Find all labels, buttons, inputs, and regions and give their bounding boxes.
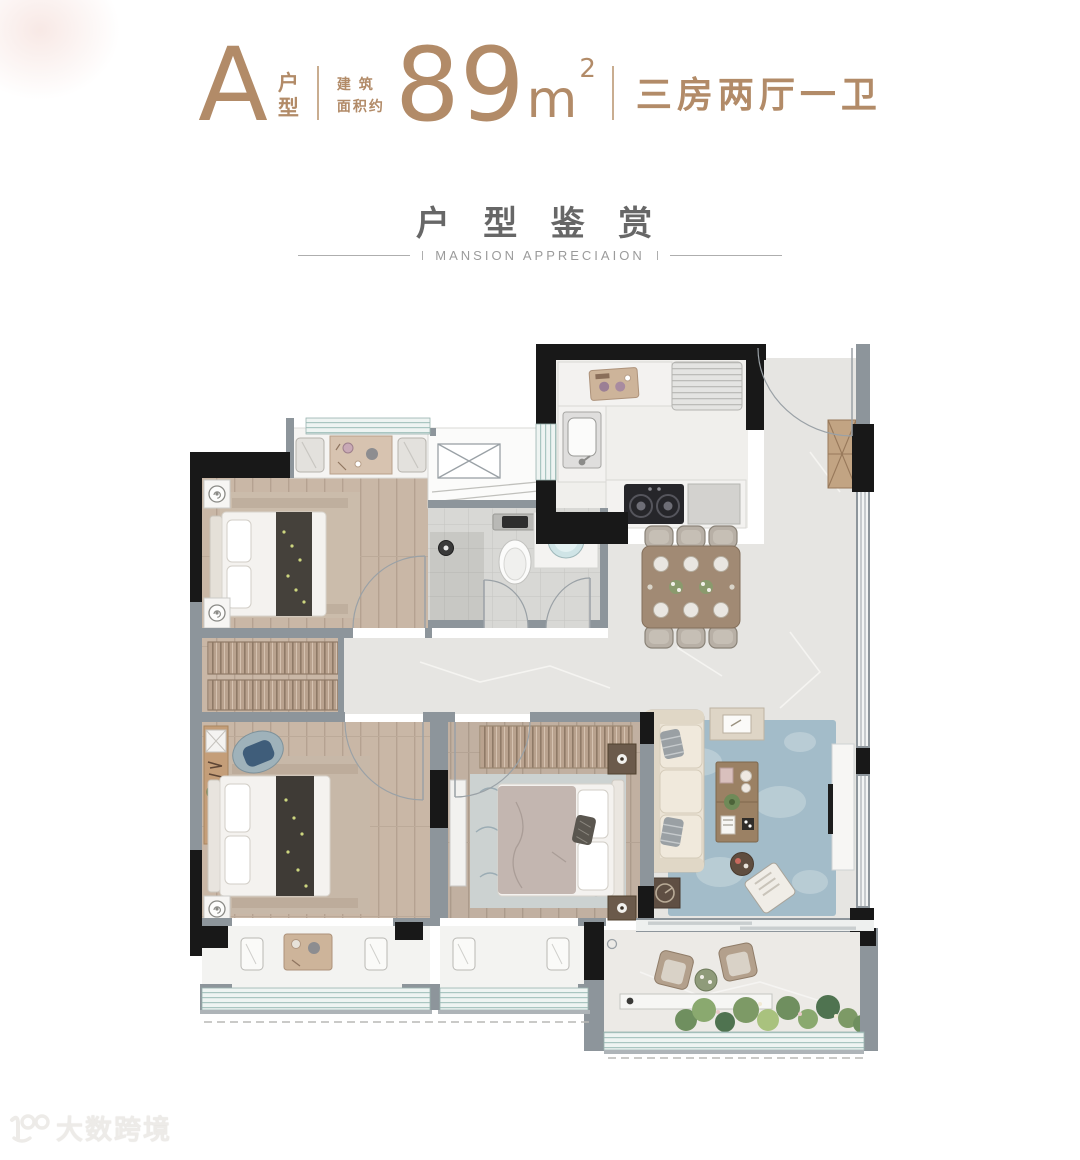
cutting-board — [589, 367, 639, 400]
area-superscript: 2 — [579, 54, 596, 84]
watermark: 大数跨境 — [6, 1108, 172, 1147]
subtitle-tick-right — [657, 251, 658, 260]
section-subtitle: MANSION APPRECIAION — [435, 248, 644, 263]
header-divider-2 — [612, 66, 614, 120]
tray — [284, 934, 332, 970]
watermark-logo — [6, 1110, 50, 1146]
window — [306, 418, 430, 434]
unit-type-letter: A — [198, 44, 268, 128]
window — [440, 988, 588, 1010]
section-title: 户 型 鉴 赏 — [0, 196, 1080, 245]
terrace-table — [695, 969, 717, 991]
desk — [330, 436, 392, 474]
stove — [624, 484, 684, 524]
unit-type-char-1: 户 — [278, 71, 299, 96]
stool — [731, 853, 754, 876]
watermark-text: 大数跨境 — [56, 1108, 172, 1147]
refrigerator — [672, 362, 742, 410]
area-prefix: 建 筑 面积约 — [337, 74, 385, 117]
terrace-chair — [718, 942, 758, 982]
bed-runner — [276, 512, 312, 616]
unit-type-label: 户 型 — [278, 71, 299, 121]
window — [202, 988, 430, 1010]
window — [858, 492, 868, 746]
bed-runner — [276, 776, 314, 896]
console-bench — [710, 708, 764, 740]
area-prefix-line2: 面积约 — [337, 96, 385, 118]
chair — [398, 438, 426, 472]
terrace-chair — [653, 949, 694, 990]
window — [604, 1032, 864, 1050]
coffee-table — [716, 762, 758, 842]
dining-area — [642, 526, 740, 648]
subtitle-line-right — [670, 255, 782, 256]
side-cabinet — [450, 780, 466, 886]
header: A 户 型 建 筑 面积约 89 m 2 三房两厅一卫 — [0, 44, 1080, 128]
desk-nook — [296, 436, 426, 474]
area-unit: m — [527, 74, 578, 126]
tv — [828, 784, 833, 834]
unit-type-char-2: 型 — [278, 96, 299, 121]
area-value: 89 — [395, 44, 525, 128]
layout-description: 三房两厅一卫 — [636, 66, 882, 118]
cabinet — [688, 484, 740, 524]
shower-area — [430, 532, 484, 626]
living-room — [644, 708, 854, 916]
subtitle-line-left — [298, 255, 410, 256]
blanket — [498, 786, 576, 894]
subtitle-tick-left — [422, 251, 423, 260]
area-prefix-line1: 建 筑 — [337, 74, 385, 96]
tv-cabinet — [832, 744, 854, 870]
window — [536, 424, 556, 480]
floor-plan — [180, 332, 880, 1059]
section-subtitle-row: MANSION APPRECIAION — [0, 248, 1080, 263]
window — [858, 776, 868, 906]
chair — [296, 438, 324, 472]
sliding-door — [636, 920, 874, 931]
header-divider-1 — [317, 66, 319, 120]
